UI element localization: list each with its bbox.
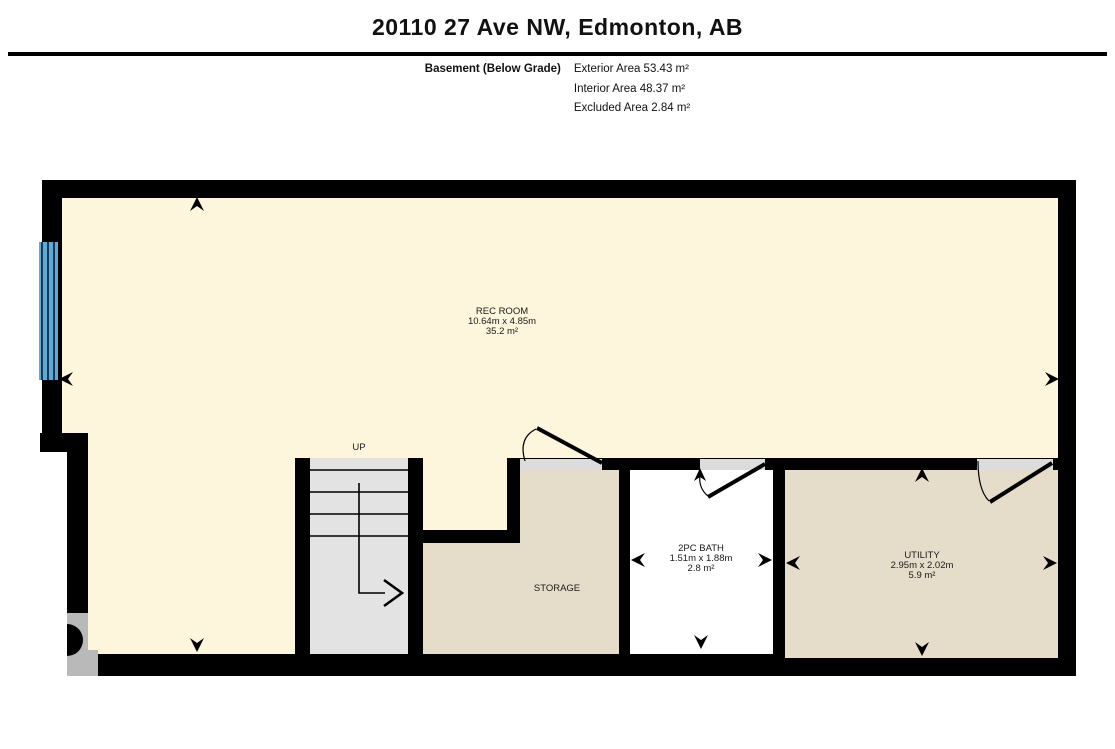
- storage-floor-lower: [423, 543, 619, 654]
- window-pane-line: [53, 242, 55, 380]
- bath-door-opening: [700, 459, 765, 470]
- rec-room-area: 35.2 m²: [468, 327, 536, 337]
- bath-label: 2PC BATH 1.51m x 1.88m 2.8 m²: [670, 544, 733, 574]
- stairs-up-label: UP: [352, 443, 365, 453]
- sump-block-notch: [88, 613, 98, 650]
- page-title: 20110 27 Ave NW, Edmonton, AB: [0, 14, 1115, 41]
- left-wall-step: [40, 433, 88, 452]
- rec-room-floor-left-wing: [88, 452, 295, 654]
- bath-area: 2.8 m²: [670, 564, 733, 574]
- rec-room-label: REC ROOM 10.64m x 4.85m 35.2 m²: [468, 307, 536, 337]
- floor-plan-page: 20110 27 Ave NW, Edmonton, AB Basement (…: [0, 0, 1115, 749]
- storage-door-opening: [520, 459, 602, 470]
- floor-name-label: Basement (Below Grade): [425, 60, 561, 119]
- stairs-floor: [310, 458, 408, 654]
- window: [39, 242, 58, 380]
- interior-area: Interior Area 48.37 m²: [574, 80, 690, 100]
- storage-label: STORAGE: [534, 584, 580, 594]
- utility-door-opening: [977, 459, 1053, 470]
- rec-room-alcove-floor: [423, 458, 507, 530]
- left-wall-lower: [67, 452, 88, 458]
- floor-info: Basement (Below Grade) Exterior Area 53.…: [0, 60, 1115, 119]
- utility-label: UTILITY 2.95m x 2.02m 5.9 m²: [891, 551, 954, 581]
- excluded-area: Excluded Area 2.84 m²: [574, 99, 690, 119]
- window-pane-line: [41, 242, 43, 380]
- area-summary: Exterior Area 53.43 m² Interior Area 48.…: [574, 60, 690, 119]
- exterior-area: Exterior Area 53.43 m²: [574, 60, 690, 80]
- rec-room-floor: [62, 198, 1058, 458]
- utility-area: 5.9 m²: [891, 571, 954, 581]
- exterior-cutout: [0, 452, 67, 676]
- header-divider: [8, 52, 1107, 56]
- window-pane-line: [47, 242, 49, 380]
